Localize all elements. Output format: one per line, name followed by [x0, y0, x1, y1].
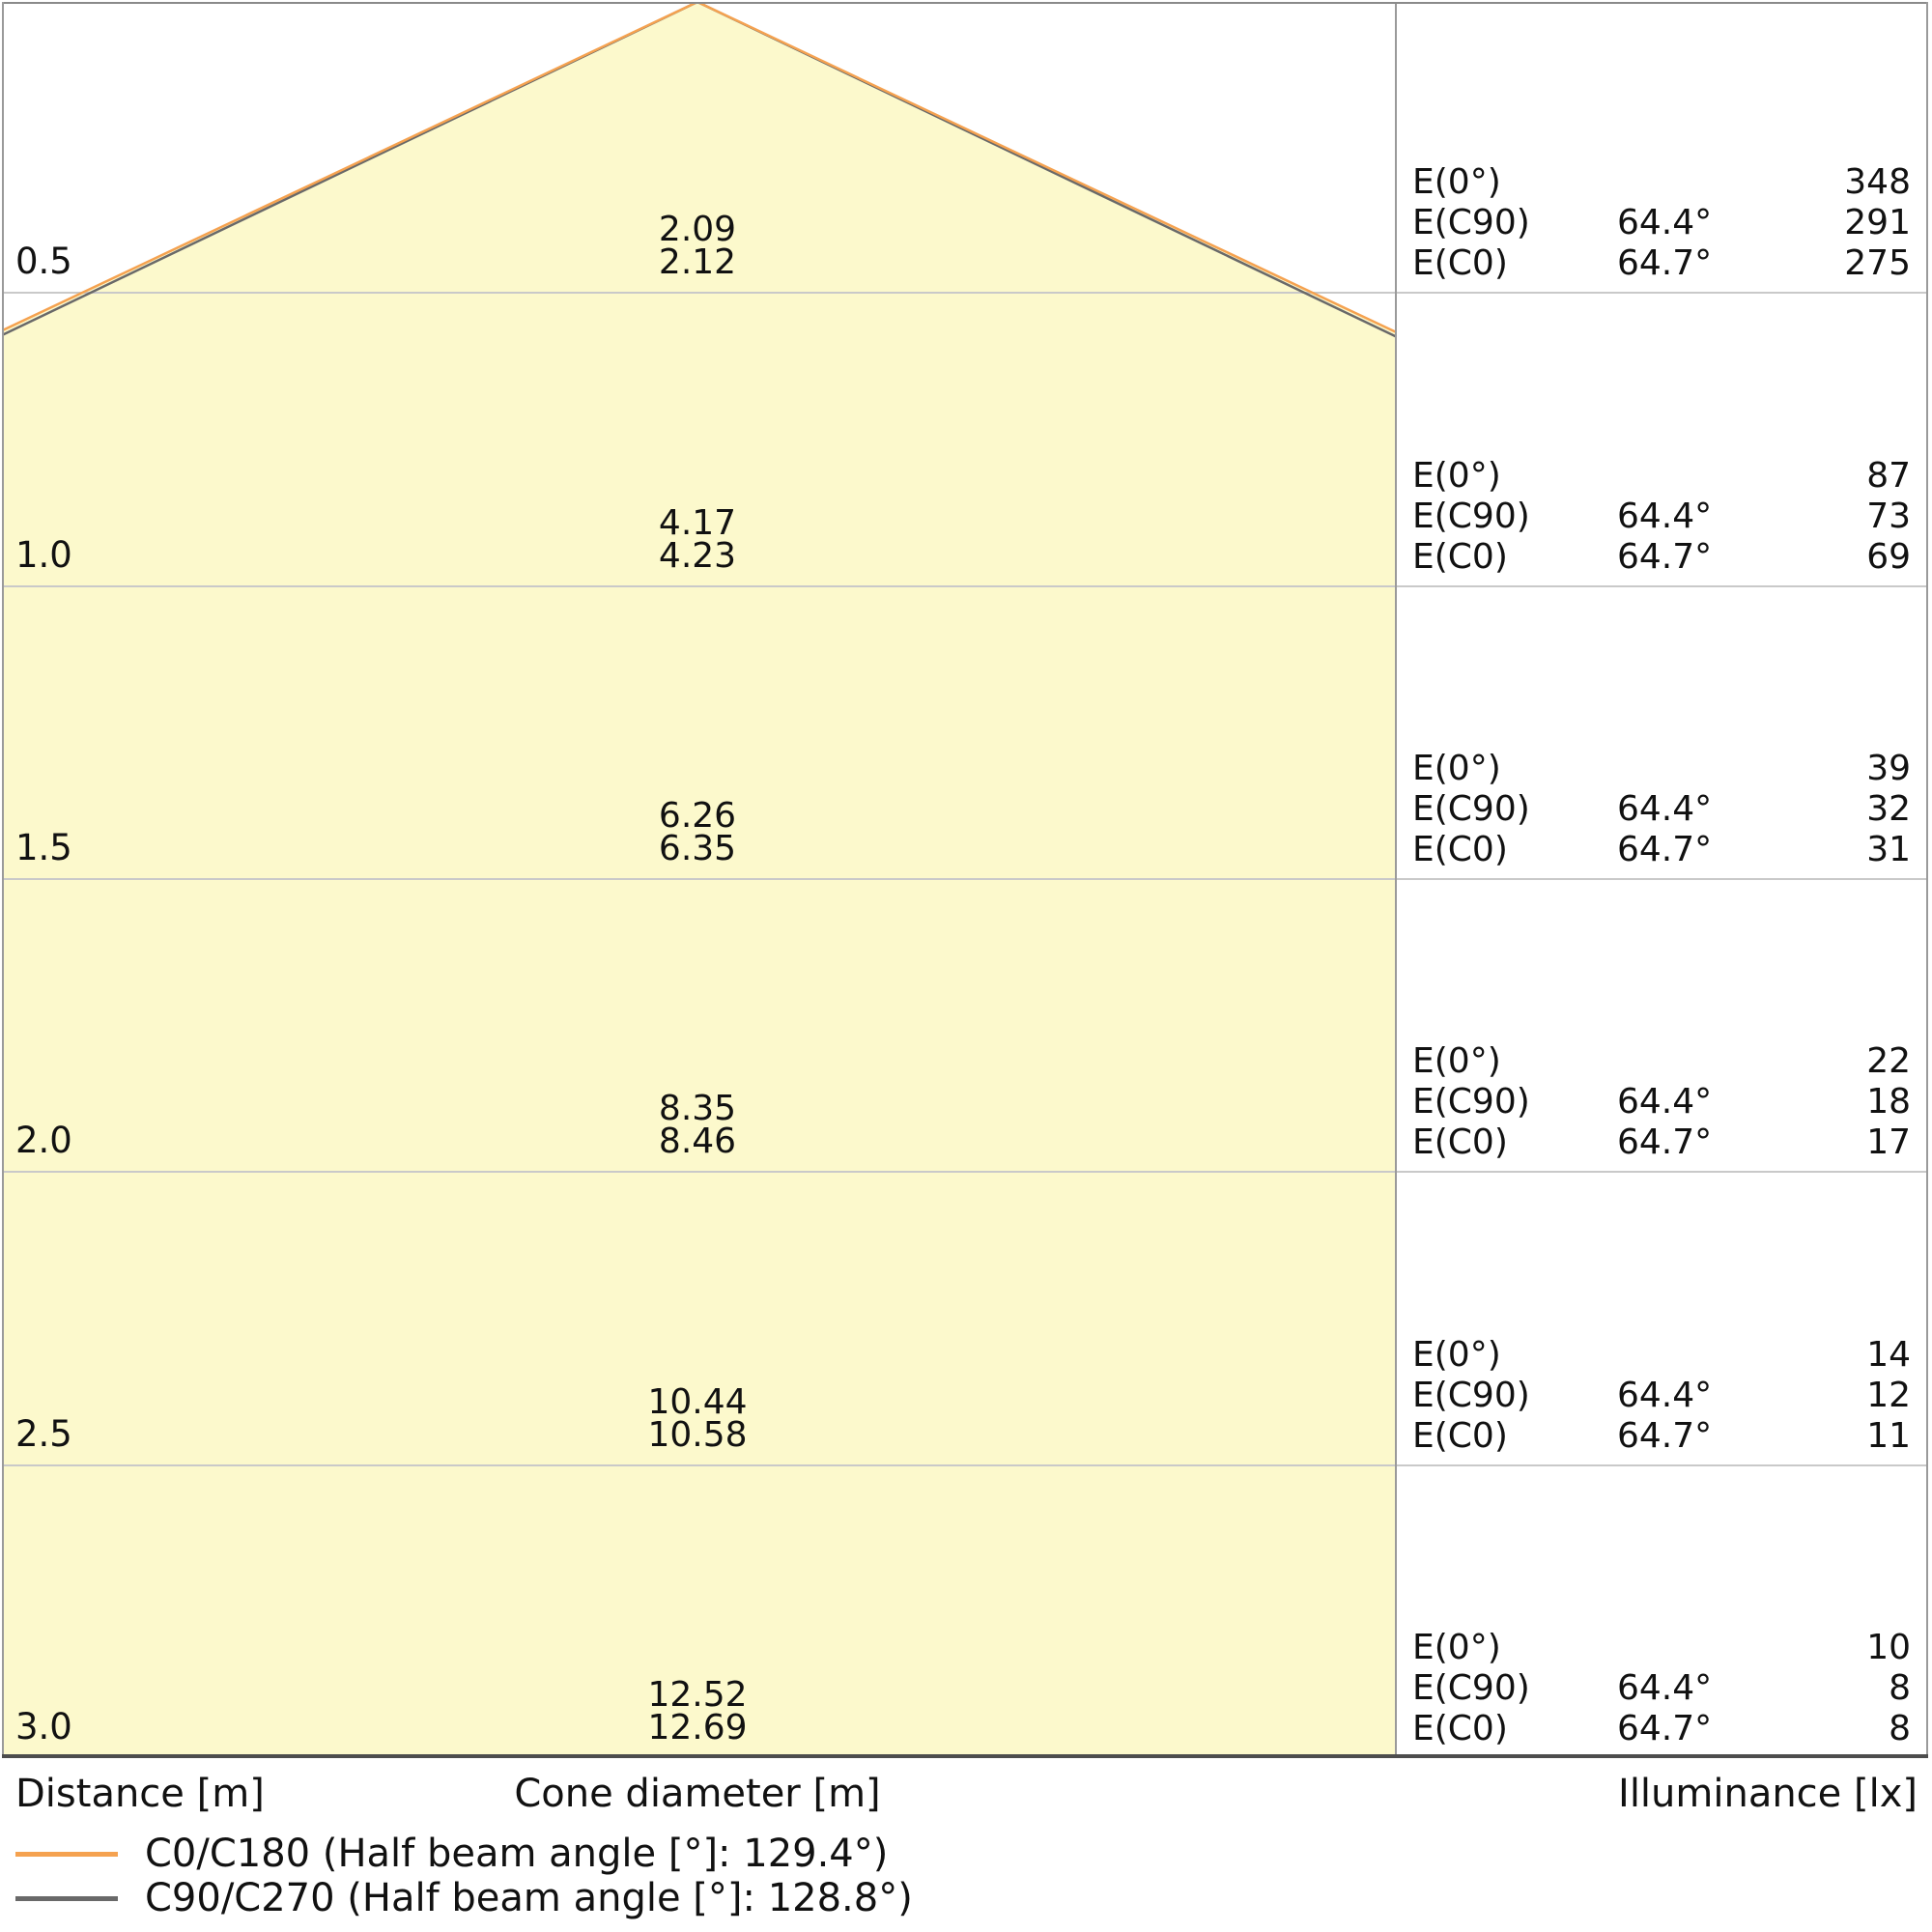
ec0-value: 275	[1844, 243, 1911, 284]
ec0-label: E(C0)	[1412, 830, 1617, 870]
ec0-label: E(C0)	[1412, 537, 1617, 578]
ec0-label: E(C0)	[1412, 243, 1617, 284]
illuminance-row-e0: E(0°) 39	[1412, 749, 1911, 789]
ec90-label: E(C90)	[1412, 203, 1617, 243]
cone-diameter-values: 4.17 4.23	[533, 507, 862, 573]
ec0-value: 17	[1866, 1122, 1911, 1163]
cone-diameter-c90-value: 6.26	[533, 800, 862, 833]
e0-label: E(0°)	[1412, 456, 1617, 497]
ec0-angle: 64.7°	[1617, 1709, 1762, 1749]
legend-item: C90/C270 (Half beam angle [°]: 128.8°)	[15, 1876, 913, 1920]
ec0-value: 8	[1889, 1709, 1911, 1749]
ec90-angle: 64.4°	[1617, 1668, 1762, 1709]
ec90-label: E(C90)	[1412, 1668, 1617, 1709]
illuminance-row-ec90: E(C90) 64.4° 32	[1412, 789, 1911, 830]
cone-diameter-c90-value: 8.35	[533, 1093, 862, 1125]
ec90-label: E(C90)	[1412, 497, 1617, 537]
ec90-angle: 64.4°	[1617, 1376, 1762, 1416]
ec0-angle: 64.7°	[1617, 537, 1762, 578]
illuminance-row-ec0: E(C0) 64.7° 69	[1412, 537, 1911, 578]
illuminance-axis-caption: Illuminance [lx]	[1618, 1772, 1918, 1816]
ec90-value: 291	[1844, 203, 1911, 243]
illuminance-block: E(0°) 22 E(C90) 64.4° 18 E(C0) 64.7° 17	[1412, 1041, 1911, 1163]
ec0-angle: 64.7°	[1617, 1122, 1762, 1163]
legend-item: C0/C180 (Half beam angle [°]: 129.4°)	[15, 1832, 913, 1876]
e0-angle	[1617, 1628, 1762, 1668]
illuminance-row-e0: E(0°) 10	[1412, 1628, 1911, 1668]
illuminance-block: E(0°) 87 E(C90) 64.4° 73 E(C0) 64.7° 69	[1412, 456, 1911, 578]
distance-label: 3.0	[15, 1708, 72, 1747]
cone-diameter-values: 10.44 10.58	[533, 1386, 862, 1452]
e0-angle	[1617, 162, 1762, 203]
ec90-value: 18	[1866, 1082, 1911, 1122]
e0-value: 39	[1866, 749, 1911, 789]
illuminance-row-e0: E(0°) 87	[1412, 456, 1911, 497]
e0-angle	[1617, 749, 1762, 789]
illuminance-row-e0: E(0°) 348	[1412, 162, 1911, 203]
light-cone-diagram: 0.5 2.09 2.12 E(0°) 348 E(C90) 64.4° 291…	[0, 0, 1932, 1932]
cone-diameter-c90-value: 10.44	[533, 1386, 862, 1419]
cone-diameter-c0-value: 6.35	[533, 833, 862, 866]
ec90-angle: 64.4°	[1617, 203, 1762, 243]
e0-value: 10	[1866, 1628, 1911, 1668]
illuminance-row-ec0: E(C0) 64.7° 31	[1412, 830, 1911, 870]
e0-value: 22	[1866, 1041, 1911, 1082]
cone-diameter-c90-value: 4.17	[533, 507, 862, 540]
ec0-value: 11	[1866, 1416, 1911, 1457]
illuminance-block: E(0°) 14 E(C90) 64.4° 12 E(C0) 64.7° 11	[1412, 1335, 1911, 1457]
illuminance-row-ec90: E(C90) 64.4° 73	[1412, 497, 1911, 537]
ec90-value: 12	[1866, 1376, 1911, 1416]
cone-diameter-values: 6.26 6.35	[533, 800, 862, 866]
distance-label: 2.0	[15, 1122, 72, 1160]
illuminance-row-ec90: E(C90) 64.4° 291	[1412, 203, 1911, 243]
illuminance-row-ec0: E(C0) 64.7° 275	[1412, 243, 1911, 284]
e0-angle	[1617, 1335, 1762, 1376]
e0-angle	[1617, 456, 1762, 497]
ec0-value: 69	[1866, 537, 1911, 578]
cone-diameter-axis-caption: Cone diameter [m]	[408, 1772, 987, 1816]
distance-label: 1.0	[15, 536, 72, 575]
e0-value: 348	[1844, 162, 1911, 203]
illuminance-row-ec0: E(C0) 64.7° 8	[1412, 1709, 1911, 1749]
e0-value: 14	[1866, 1335, 1911, 1376]
distance-axis-caption: Distance [m]	[15, 1772, 265, 1816]
e0-label: E(0°)	[1412, 1628, 1617, 1668]
e0-value: 87	[1866, 456, 1911, 497]
ec90-label: E(C90)	[1412, 1376, 1617, 1416]
e0-label: E(0°)	[1412, 1335, 1617, 1376]
ec0-label: E(C0)	[1412, 1709, 1617, 1749]
cone-diameter-values: 12.52 12.69	[533, 1679, 862, 1745]
illuminance-block: E(0°) 10 E(C90) 64.4° 8 E(C0) 64.7° 8	[1412, 1628, 1911, 1749]
e0-angle	[1617, 1041, 1762, 1082]
ec90-angle: 64.4°	[1617, 1082, 1762, 1122]
cone-diameter-c0-value: 2.12	[533, 246, 862, 279]
legend-label: C0/C180 (Half beam angle [°]: 129.4°)	[145, 1833, 888, 1875]
illuminance-row-ec90: E(C90) 64.4° 12	[1412, 1376, 1911, 1416]
illuminance-row-ec90: E(C90) 64.4° 8	[1412, 1668, 1911, 1709]
ec0-angle: 64.7°	[1617, 243, 1762, 284]
ec90-value: 8	[1889, 1668, 1911, 1709]
ec90-angle: 64.4°	[1617, 789, 1762, 830]
ec90-angle: 64.4°	[1617, 497, 1762, 537]
legend: C0/C180 (Half beam angle [°]: 129.4°) C9…	[15, 1832, 913, 1920]
legend-line-swatch	[15, 1852, 118, 1857]
ec0-angle: 64.7°	[1617, 1416, 1762, 1457]
distance-label: 0.5	[15, 242, 72, 281]
illuminance-block: E(0°) 348 E(C90) 64.4° 291 E(C0) 64.7° 2…	[1412, 162, 1911, 284]
cone-diameter-c0-value: 4.23	[533, 540, 862, 573]
ec0-label: E(C0)	[1412, 1416, 1617, 1457]
ec90-label: E(C90)	[1412, 789, 1617, 830]
cone-diameter-c0-value: 8.46	[533, 1125, 862, 1158]
e0-label: E(0°)	[1412, 749, 1617, 789]
ec90-value: 73	[1866, 497, 1911, 537]
distance-label: 2.5	[15, 1415, 72, 1454]
cone-diameter-values: 2.09 2.12	[533, 213, 862, 279]
legend-label: C90/C270 (Half beam angle [°]: 128.8°)	[145, 1877, 913, 1919]
e0-label: E(0°)	[1412, 1041, 1617, 1082]
cone-diameter-c0-value: 12.69	[533, 1712, 862, 1745]
cone-diameter-c90-value: 2.09	[533, 213, 862, 246]
illuminance-row-ec90: E(C90) 64.4° 18	[1412, 1082, 1911, 1122]
illuminance-row-e0: E(0°) 22	[1412, 1041, 1911, 1082]
cone-diameter-c0-value: 10.58	[533, 1419, 862, 1452]
illuminance-row-ec0: E(C0) 64.7° 11	[1412, 1416, 1911, 1457]
ec90-value: 32	[1866, 789, 1911, 830]
illuminance-row-ec0: E(C0) 64.7° 17	[1412, 1122, 1911, 1163]
legend-line-swatch	[15, 1896, 118, 1901]
distance-label: 1.5	[15, 829, 72, 867]
ec0-value: 31	[1866, 830, 1911, 870]
cone-diameter-c90-value: 12.52	[533, 1679, 862, 1712]
ec90-label: E(C90)	[1412, 1082, 1617, 1122]
ec0-label: E(C0)	[1412, 1122, 1617, 1163]
cone-diameter-values: 8.35 8.46	[533, 1093, 862, 1158]
ec0-angle: 64.7°	[1617, 830, 1762, 870]
e0-label: E(0°)	[1412, 162, 1617, 203]
illuminance-block: E(0°) 39 E(C90) 64.4° 32 E(C0) 64.7° 31	[1412, 749, 1911, 870]
illuminance-row-e0: E(0°) 14	[1412, 1335, 1911, 1376]
